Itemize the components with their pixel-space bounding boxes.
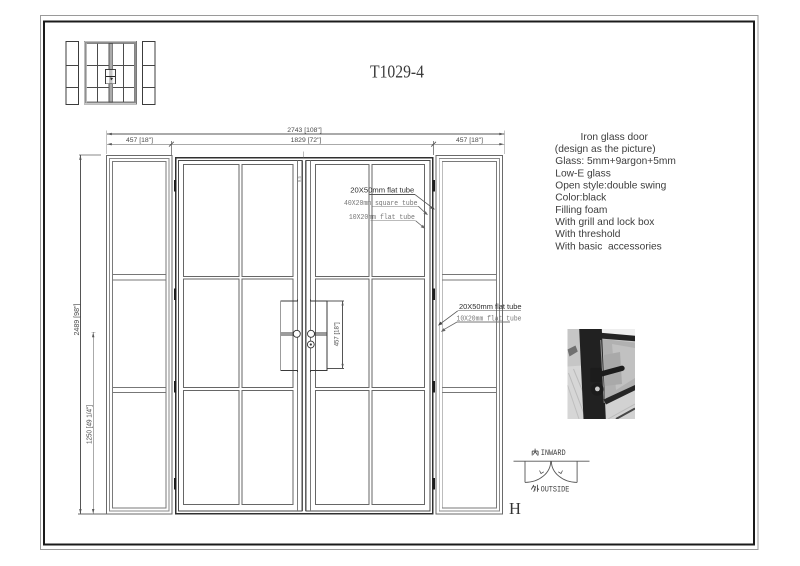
svg-text:(design as the picture): (design as the picture) <box>555 144 656 155</box>
svg-text:OUTSIDE: OUTSIDE <box>541 486 570 495</box>
svg-text:457 [18"]: 457 [18"] <box>126 137 153 144</box>
svg-text:T1029-4: T1029-4 <box>370 62 424 82</box>
svg-text:INWARD: INWARD <box>541 449 566 458</box>
svg-text:20X50mm flat tube: 20X50mm flat tube <box>350 185 414 194</box>
svg-text:With grill and lock box: With grill and lock box <box>555 217 654 228</box>
svg-text:20X50mm flat tube: 20X50mm flat tube <box>459 302 522 311</box>
svg-text:Iron glass door: Iron glass door <box>581 132 649 143</box>
svg-text:9.5: 9.5 <box>297 176 302 183</box>
svg-text:457 [18"]: 457 [18"] <box>334 322 341 346</box>
svg-text:Color:black: Color:black <box>555 193 607 204</box>
svg-text:Filling foam: Filling foam <box>555 205 607 216</box>
svg-text:457 [18"]: 457 [18"] <box>456 137 483 144</box>
svg-text:With threshold: With threshold <box>555 229 620 240</box>
svg-text:Glass: 5mm+9argon+5mm: Glass: 5mm+9argon+5mm <box>555 156 676 167</box>
svg-text:With basic accessories: With basic accessories <box>555 241 661 252</box>
svg-text:H: H <box>509 499 521 518</box>
svg-text:1250 [49 1/4"]: 1250 [49 1/4"] <box>85 405 94 444</box>
svg-text:Low-E glass: Low-E glass <box>555 168 611 179</box>
svg-text:2743 [108"]: 2743 [108"] <box>287 127 322 134</box>
svg-text:Open style:double swing: Open style:double swing <box>555 181 666 192</box>
svg-text:1829 [72"]: 1829 [72"] <box>291 137 322 144</box>
svg-text:2489 [98"]: 2489 [98"] <box>72 304 81 336</box>
